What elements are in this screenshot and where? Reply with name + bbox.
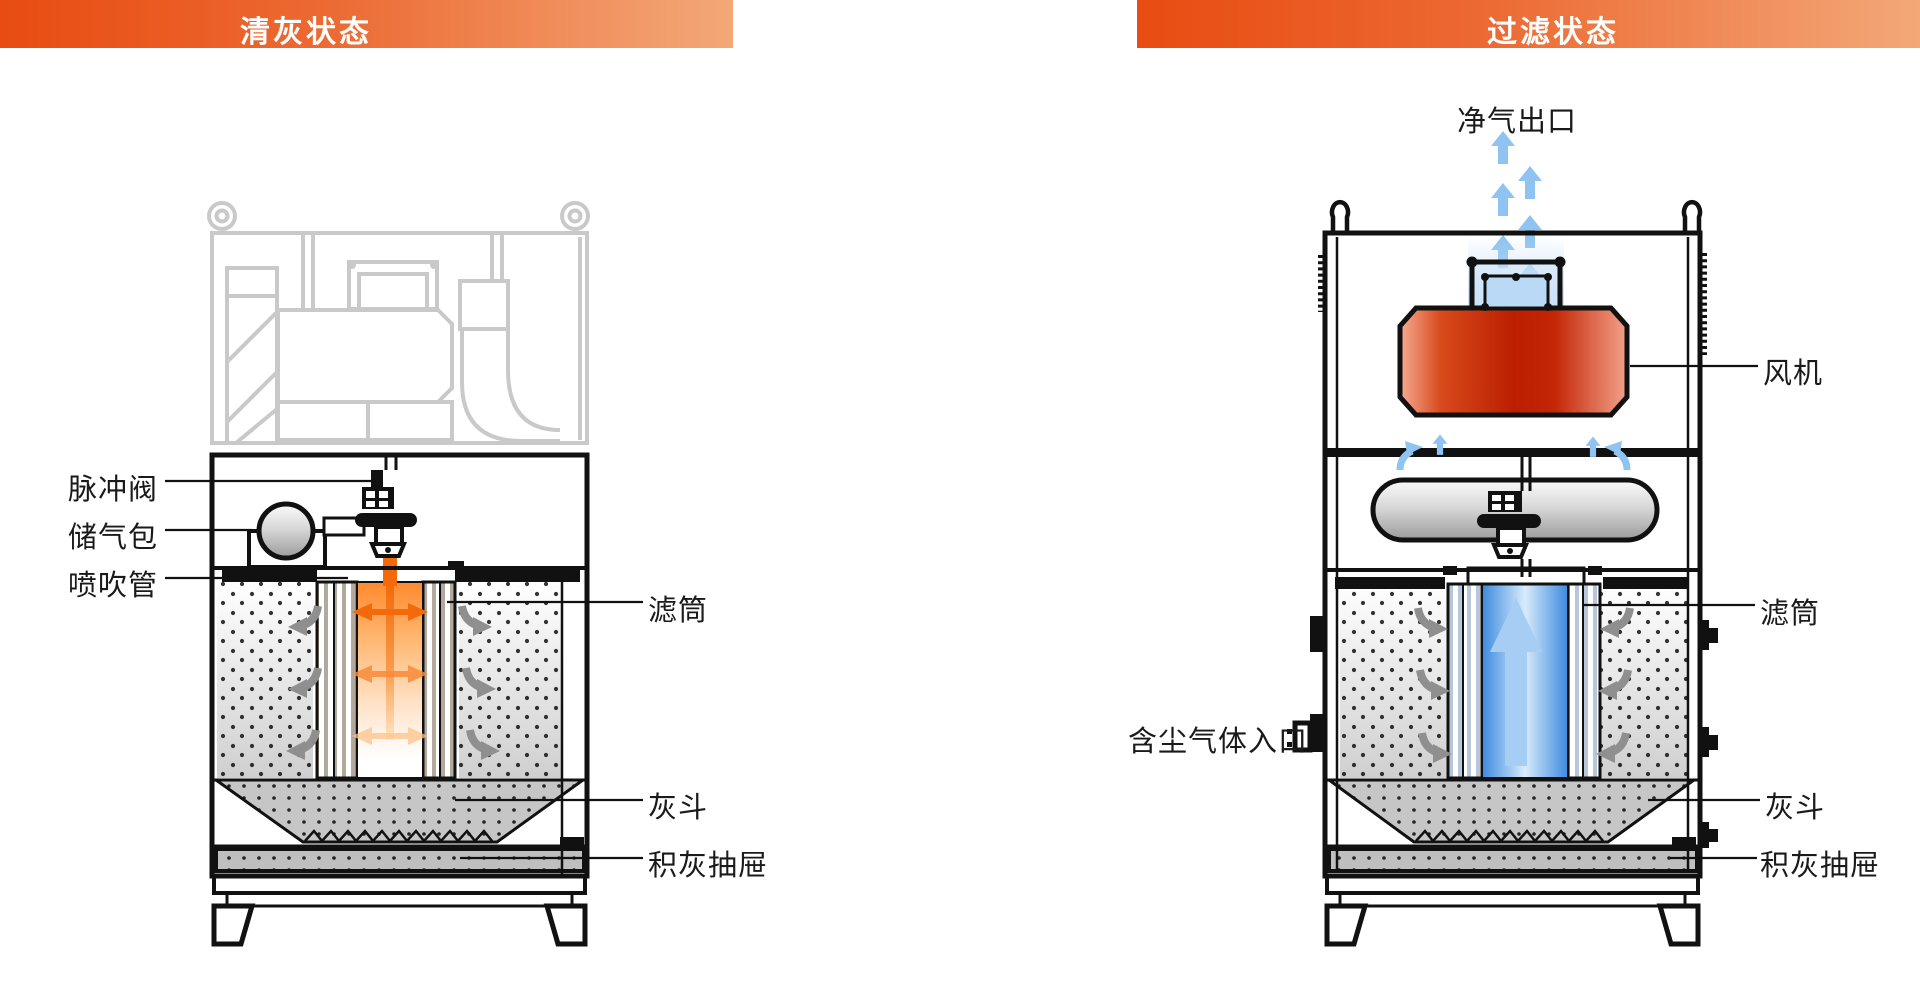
dust-collector-diagram: [0, 0, 1920, 1000]
pulse-valve: [355, 487, 417, 556]
ghost-fan-section: [209, 203, 588, 443]
label-ash-hopper-left: 灰斗: [648, 784, 708, 826]
fan-block: [1400, 308, 1627, 415]
label-dust-drawer-left: 积灰抽屉: [648, 842, 768, 884]
right-leg: [547, 906, 585, 944]
right-machine-filtering-state: [1287, 131, 1760, 944]
air-reservoir: [259, 504, 313, 558]
label-blow-pipe: 喷吹管: [68, 562, 158, 604]
lifting-eyebolt-icon: [209, 203, 235, 229]
left-ash-hopper: [216, 780, 583, 842]
left-machine-cleaning-state: [165, 203, 643, 944]
lifting-eyebolt-icon: [1332, 202, 1348, 233]
lifting-eyebolt-icon: [1684, 202, 1700, 233]
left-leg: [214, 906, 252, 944]
door-latch-icon: [1700, 620, 1718, 848]
right-ash-hopper: [1329, 780, 1694, 842]
left-leg: [1327, 906, 1365, 944]
left-pulse-system: [249, 455, 417, 567]
label-dusty-gas-inlet: 含尘气体入口: [1128, 718, 1308, 760]
label-air-reservoir: 储气包: [68, 514, 158, 556]
ghost-fan-block: [278, 310, 452, 402]
fan-assembly: [1400, 257, 1627, 471]
label-ash-hopper-right: 灰斗: [1765, 784, 1825, 826]
label-fan: 风机: [1763, 350, 1823, 392]
label-filter-cartridge-right: 滤筒: [1760, 590, 1820, 632]
right-filter-cartridge: [1448, 584, 1600, 778]
label-clean-air-outlet: 净气出口: [1457, 98, 1577, 140]
lifting-eyebolt-icon: [562, 203, 588, 229]
right-pulse-system: [1373, 457, 1657, 577]
diagram-page: 清灰状态 过滤状态: [0, 0, 1920, 1000]
left-filter-cartridge: [317, 554, 455, 778]
right-leg: [1660, 906, 1698, 944]
label-filter-cartridge-left: 滤筒: [648, 587, 708, 629]
label-pulse-valve: 脉冲阀: [68, 466, 158, 508]
label-dust-drawer-right: 积灰抽屉: [1760, 842, 1880, 884]
